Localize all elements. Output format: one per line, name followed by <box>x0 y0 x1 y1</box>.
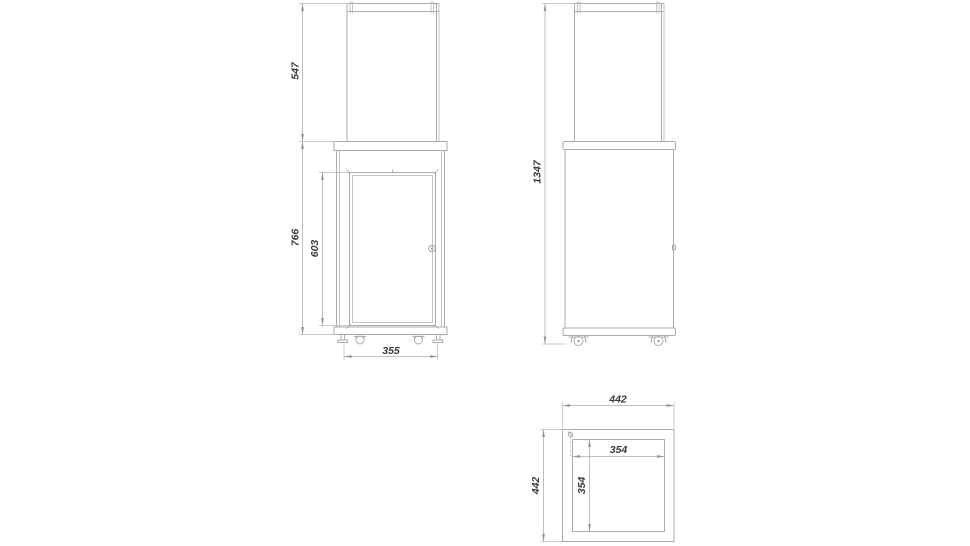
drawing-canvas: 547 766 603 355 <box>0 0 970 546</box>
dim-label-354-h: 354 <box>610 444 628 456</box>
dim-label-1347: 1347 <box>532 159 544 184</box>
front-left-foot <box>338 335 348 343</box>
front-base <box>334 327 447 335</box>
dim-label-442-top: 442 <box>608 394 627 406</box>
dim-outer-depth: 442 <box>530 430 563 542</box>
dim-outer-width: 442 <box>563 394 675 429</box>
side-base <box>563 328 676 336</box>
dim-body-height: 766 <box>290 142 335 335</box>
dim-door-height: 603 <box>309 173 350 326</box>
dim-inner-depth: 354 <box>576 440 591 532</box>
control-knob <box>568 432 573 459</box>
front-left-caster <box>354 335 366 345</box>
dim-label-442-left: 442 <box>530 477 542 496</box>
dim-overall-height: 1347 <box>532 4 575 345</box>
side-view: 1347 <box>532 2 676 346</box>
top-view: 442 442 354 354 <box>530 394 674 542</box>
front-glass-panel <box>347 2 439 142</box>
door-lock <box>429 245 435 251</box>
dim-label-355: 355 <box>382 345 400 357</box>
side-top-cap <box>563 142 676 150</box>
dim-label-766: 766 <box>290 229 302 247</box>
dim-base-width: 355 <box>344 344 438 361</box>
technical-drawing: 547 766 603 355 <box>0 0 970 546</box>
front-view: 547 766 603 355 <box>290 2 448 361</box>
dim-label-603: 603 <box>309 240 321 258</box>
dim-glass-height: 547 <box>290 4 348 142</box>
side-right-caster <box>649 336 669 346</box>
dim-inner-width: 354 <box>573 444 665 458</box>
dim-label-547: 547 <box>290 61 302 80</box>
front-top-cap <box>334 142 447 151</box>
side-left-caster <box>569 336 589 346</box>
side-body <box>565 150 674 329</box>
front-right-foot <box>433 335 443 343</box>
front-right-caster <box>413 335 425 345</box>
dim-label-354-v: 354 <box>576 477 588 495</box>
front-door <box>347 170 439 329</box>
side-glass-panel <box>575 2 665 142</box>
